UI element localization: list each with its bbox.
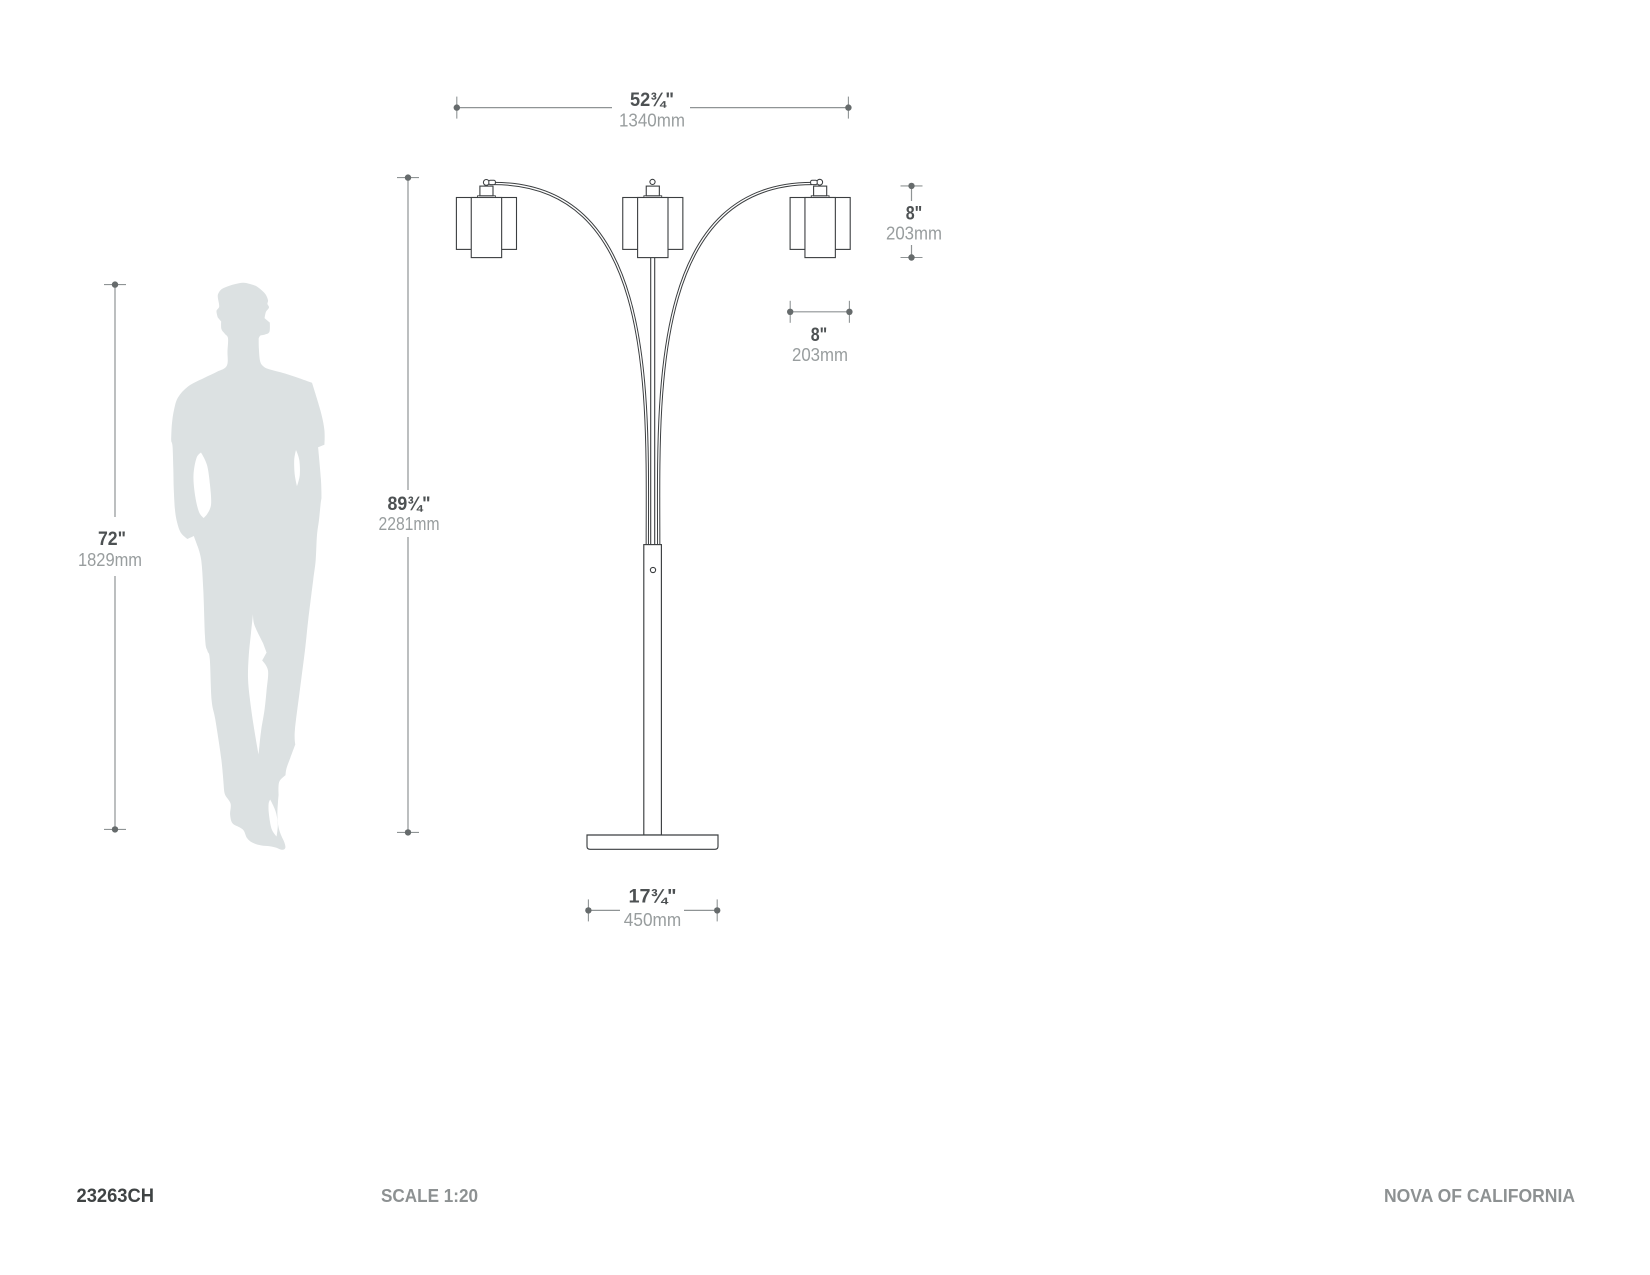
- svg-text:1829mm: 1829mm: [78, 550, 142, 570]
- svg-text:17¾": 17¾": [629, 887, 677, 908]
- svg-text:SCALE 1:20: SCALE 1:20: [381, 1186, 478, 1206]
- svg-text:2281mm: 2281mm: [379, 514, 440, 534]
- svg-text:52¾": 52¾": [630, 90, 674, 111]
- svg-text:89¾": 89¾": [388, 494, 431, 515]
- svg-text:8": 8": [811, 325, 828, 346]
- svg-text:203mm: 203mm: [792, 345, 848, 365]
- svg-text:1340mm: 1340mm: [619, 111, 685, 131]
- svg-text:72": 72": [98, 529, 126, 550]
- svg-text:23263CH: 23263CH: [77, 1186, 155, 1207]
- svg-text:203mm: 203mm: [886, 224, 942, 244]
- svg-text:8": 8": [906, 204, 923, 225]
- svg-text:450mm: 450mm: [624, 910, 681, 930]
- svg-text:NOVA OF CALIFORNIA: NOVA OF CALIFORNIA: [1384, 1186, 1575, 1206]
